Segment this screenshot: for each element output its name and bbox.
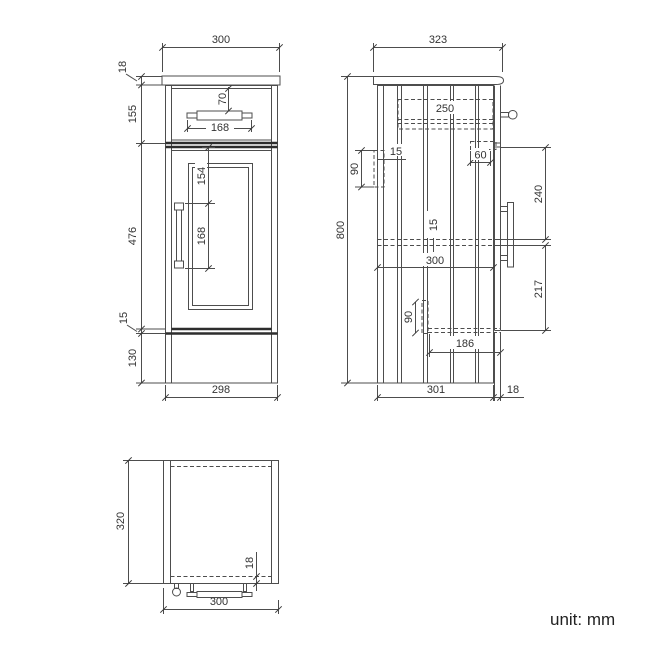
dim-side-door-thickness: 18 bbox=[494, 332, 525, 401]
dim-label-side-240: 240 bbox=[533, 185, 545, 203]
dim-side-shelf-to-door-bottom: 217 bbox=[494, 242, 551, 333]
dim-front-drawer-handle-width: 168 bbox=[184, 120, 254, 134]
dim-front-left-chain: 18 155 476 15 130 bbox=[117, 61, 165, 386]
dim-label-top-300: 300 bbox=[210, 596, 228, 608]
dim-label-front-70: 70 bbox=[217, 93, 229, 105]
side-wall-bracket-hidden bbox=[374, 151, 384, 188]
side-drawer-knob bbox=[501, 111, 518, 120]
side-door-edge bbox=[495, 86, 501, 331]
dim-label-front-168-door: 168 bbox=[196, 227, 208, 245]
dim-label-top-320: 320 bbox=[115, 512, 127, 530]
dim-label-front-168-drawer: 168 bbox=[211, 122, 229, 134]
dim-label-front-15: 15 bbox=[118, 312, 130, 324]
dim-side-hinge-inset: 60 bbox=[467, 148, 493, 166]
top-carcass bbox=[164, 461, 279, 584]
dim-top-depth: 320 bbox=[115, 457, 163, 586]
dim-label-front-300: 300 bbox=[212, 34, 230, 46]
dim-front-drawer-handle-offset: 70 bbox=[217, 85, 232, 114]
dim-side-wall-bracket-height: 90 bbox=[349, 147, 374, 190]
front-door-handle bbox=[175, 203, 184, 268]
cabinet-technical-drawing: 300 18 155 476 15 130 70 bbox=[0, 0, 650, 650]
dim-label-side-800: 800 bbox=[335, 221, 347, 239]
dim-label-front-298: 298 bbox=[212, 384, 230, 396]
top-view: 18 320 300 bbox=[115, 457, 282, 614]
dim-label-side-301: 301 bbox=[427, 384, 445, 396]
side-door-handle bbox=[501, 203, 514, 268]
dim-label-front-154: 154 bbox=[196, 167, 208, 185]
dim-label-side-90-top: 90 bbox=[349, 163, 361, 175]
dim-label-side-323: 323 bbox=[429, 34, 447, 46]
side-bottom-panel-hidden bbox=[428, 329, 500, 333]
front-countertop bbox=[162, 76, 280, 85]
dim-label-side-217: 217 bbox=[533, 280, 545, 298]
dim-label-front-18: 18 bbox=[117, 61, 129, 73]
dim-label-front-476: 476 bbox=[127, 227, 139, 245]
dim-label-side-60: 60 bbox=[474, 150, 486, 162]
side-countertop bbox=[374, 77, 504, 85]
dim-label-front-130: 130 bbox=[127, 349, 139, 367]
dim-front-countertop-width: 300 bbox=[159, 34, 282, 72]
dim-label-side-15-bracket: 15 bbox=[390, 146, 402, 158]
dim-label-side-90-bottom: 90 bbox=[403, 311, 415, 323]
dim-side-bracket-to-front: 186 bbox=[426, 334, 503, 357]
dim-side-countertop-depth: 323 bbox=[370, 34, 505, 72]
dim-side-wall-bracket-thickness: 15 bbox=[378, 144, 406, 160]
side-shelf-hidden bbox=[378, 240, 494, 246]
dim-label-side-18: 18 bbox=[507, 384, 519, 396]
dim-label-top-18: 18 bbox=[244, 557, 256, 569]
dim-side-overall-height: 800 bbox=[335, 73, 377, 386]
side-view: 250 90 15 60 bbox=[335, 34, 551, 401]
dim-label-side-300: 300 bbox=[426, 255, 444, 267]
front-view: 300 18 155 476 15 130 70 bbox=[117, 34, 283, 401]
dim-label-front-155: 155 bbox=[127, 105, 139, 123]
dim-label-side-15-shelf: 15 bbox=[428, 219, 440, 231]
dim-side-carcass-depth: 301 bbox=[374, 384, 496, 401]
drawing-page: 300 18 155 476 15 130 70 bbox=[0, 0, 650, 650]
dim-front-carcass-width: 298 bbox=[162, 384, 280, 401]
front-door-bottom-band bbox=[166, 329, 278, 334]
unit-note: unit: mm bbox=[550, 610, 615, 629]
top-door-handle-end bbox=[173, 584, 181, 597]
front-rail-band bbox=[166, 143, 278, 147]
dim-label-side-186: 186 bbox=[456, 338, 474, 350]
dim-label-side-250: 250 bbox=[436, 103, 454, 115]
front-drawer-handle bbox=[187, 111, 252, 120]
front-door bbox=[172, 151, 272, 330]
dim-side-door-top-to-shelf: 240 bbox=[494, 144, 551, 242]
dim-side-bottom-bracket-height: 90 bbox=[403, 299, 419, 336]
